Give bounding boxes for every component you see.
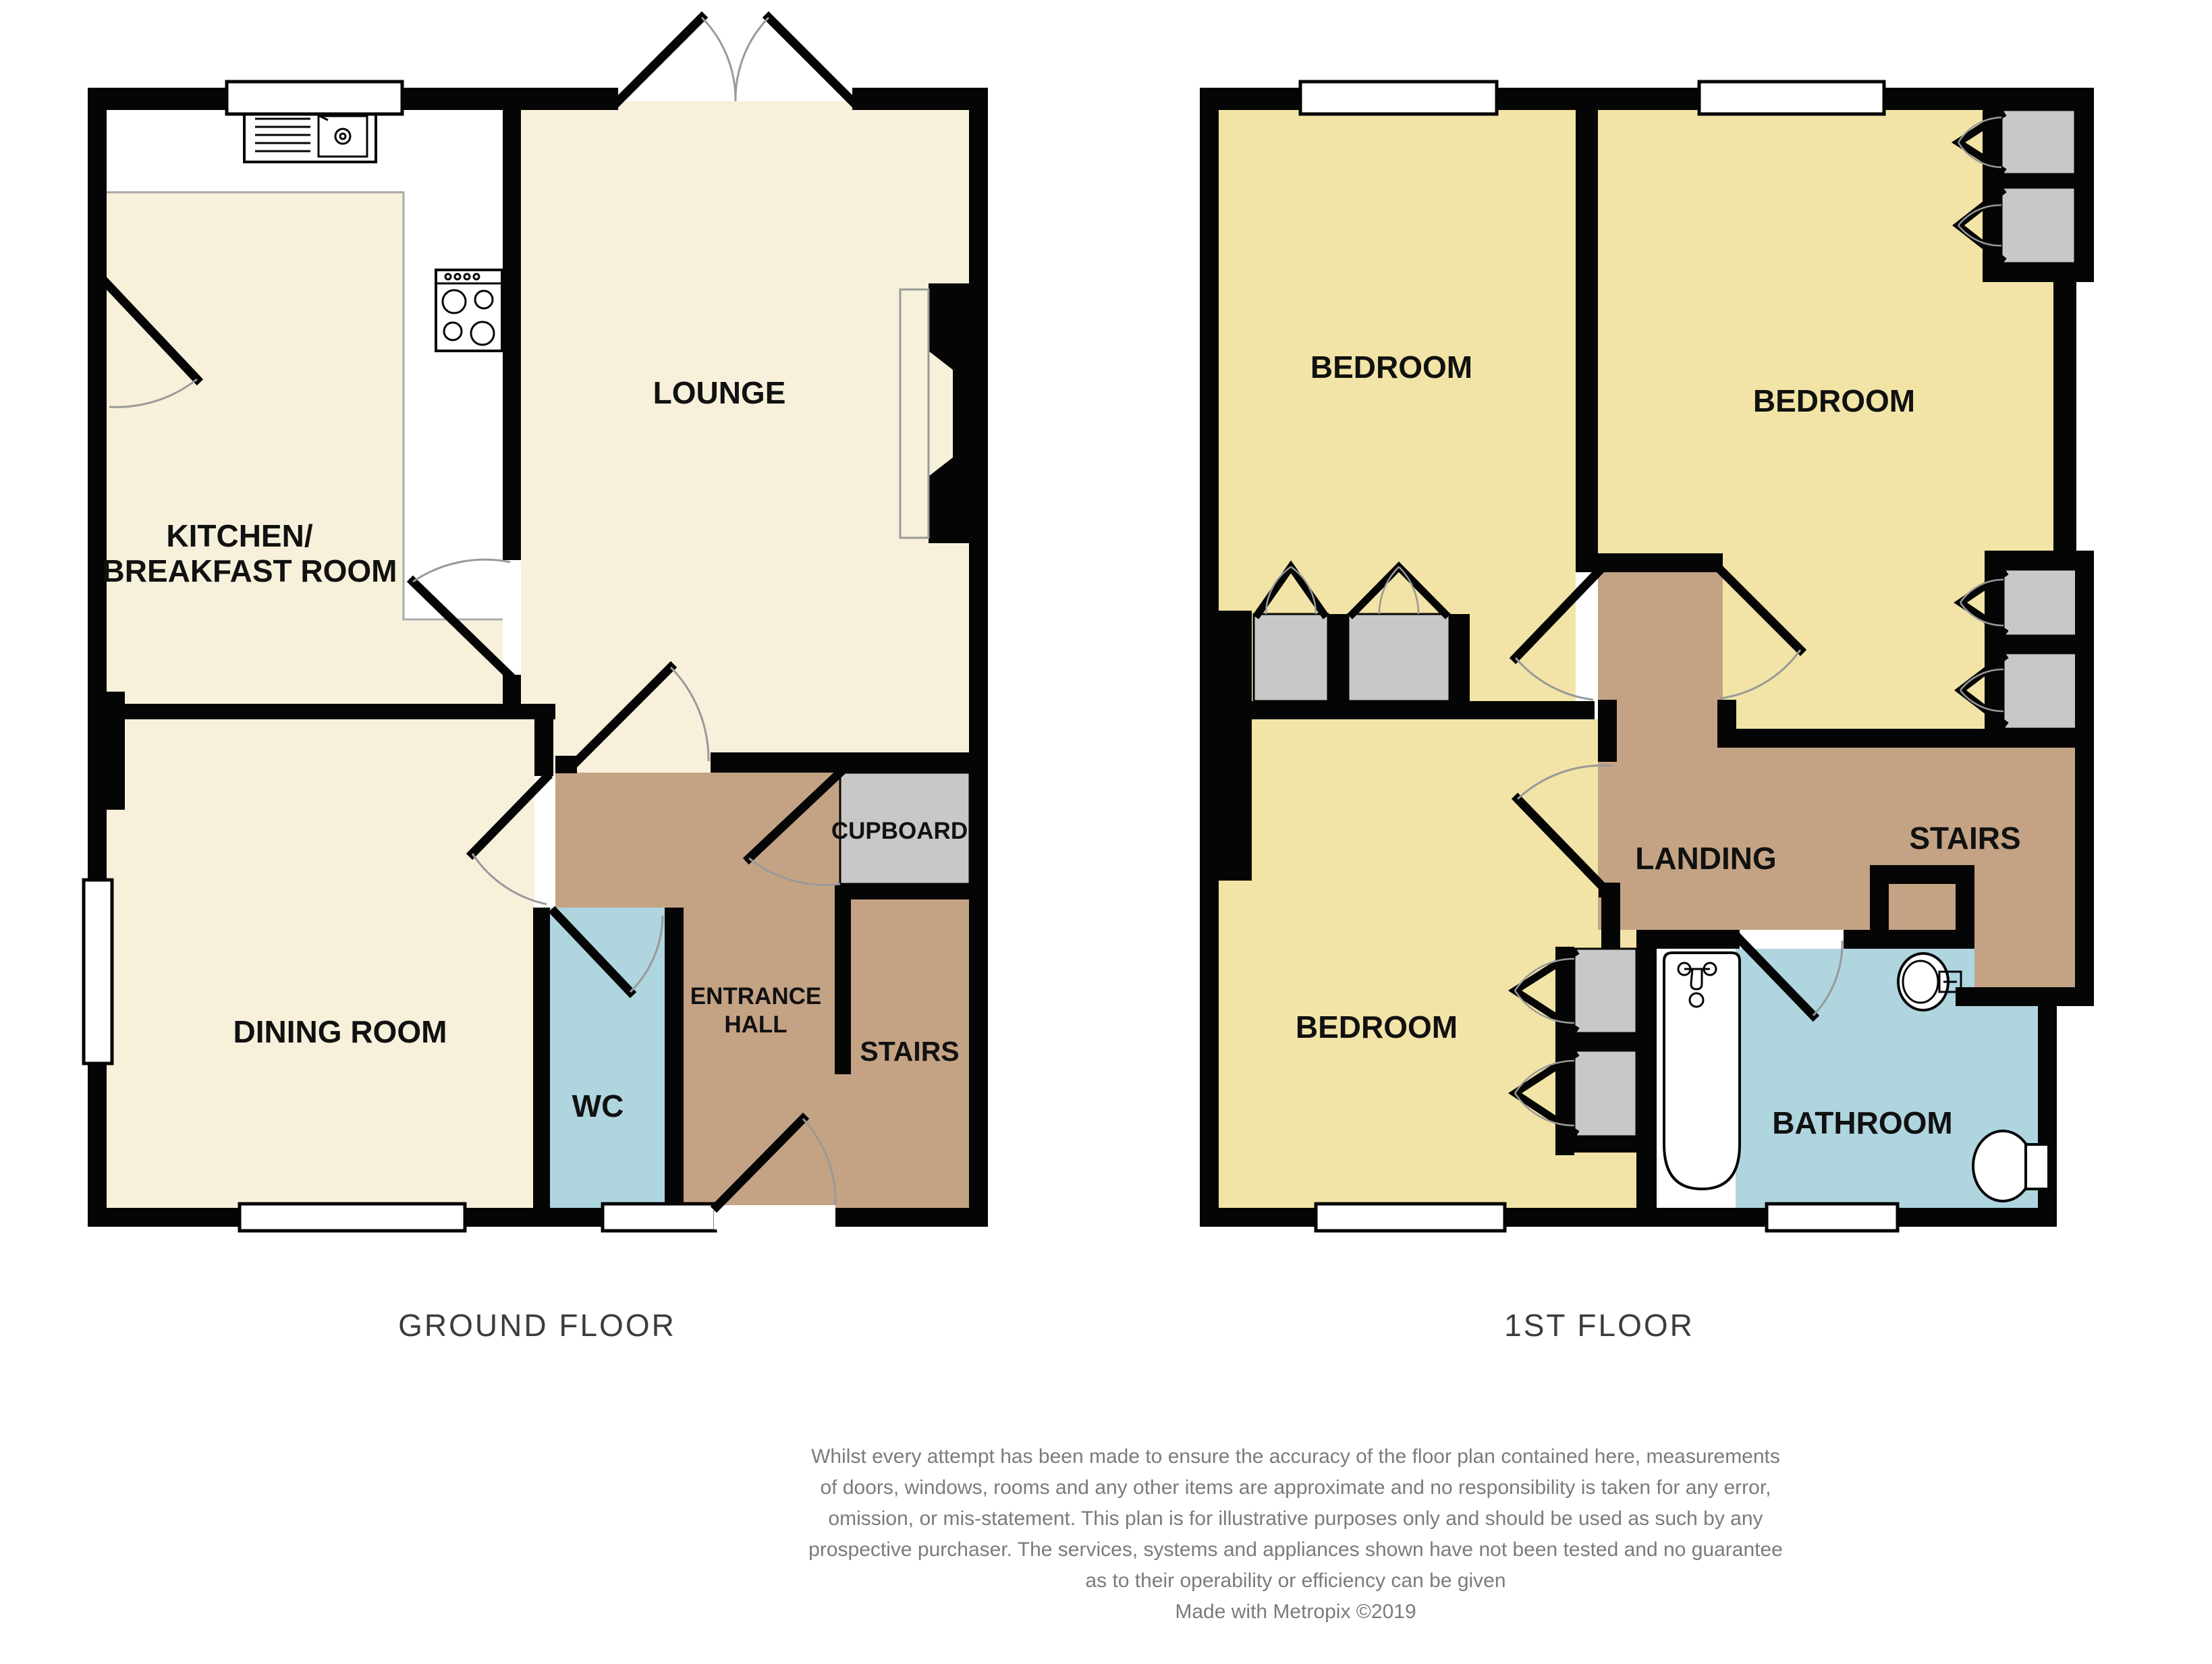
dining-side-window [84, 880, 112, 1063]
floorplan-canvas: KITCHEN/ BREAKFAST ROOM LOUNGE DINING RO… [0, 0, 2212, 1664]
first-floor-title: 1ST FLOOR [1504, 1308, 1694, 1343]
disclaimer-line: prospective purchaser. The services, sys… [702, 1534, 1889, 1565]
dining-room-floor [107, 719, 534, 1208]
dining-room-label: DINING ROOM [233, 1014, 447, 1049]
bedroom1-window [1300, 82, 1497, 114]
ground-floor-title: GROUND FLOOR [398, 1308, 676, 1343]
bathroom-label: BATHROOM [1772, 1105, 1952, 1140]
disclaimer-line: as to their operability or efficiency ca… [702, 1565, 1889, 1597]
bath-tub-icon [1657, 949, 1740, 1208]
kitchen-label-line2: BREAKFAST ROOM [103, 553, 397, 588]
bedroom1-label: BEDROOM [1310, 350, 1472, 385]
first-floor-plan: BEDROOM BEDROOM BEDROOM LANDING STAIRS B… [1200, 82, 2094, 1231]
first-stairs-label: STAIRS [1909, 821, 2020, 856]
disclaimer-line: of doors, windows, rooms and any other i… [702, 1472, 1889, 1503]
disclaimer-text: Whilst every attempt has been made to en… [702, 1441, 1889, 1628]
cooker-hob-icon [436, 270, 502, 351]
kitchen-window [227, 82, 402, 114]
entrance-hall-label-line2: HALL [724, 1011, 787, 1038]
bedroom1-floor [1219, 110, 1576, 701]
wc-floor [550, 908, 665, 1208]
bedroom2-label: BEDROOM [1753, 383, 1915, 418]
kitchen-label-line1: KITCHEN/ [166, 518, 312, 553]
lounge-label: LOUNGE [653, 375, 786, 410]
wc-window [603, 1204, 715, 1231]
landing-nook-floor [1889, 884, 1956, 930]
ground-stairs-label: STAIRS [860, 1036, 959, 1067]
ground-floor-plan: KITCHEN/ BREAKFAST ROOM LOUNGE DINING RO… [84, 18, 988, 1231]
dining-window [240, 1204, 465, 1231]
bedroom2-window [1699, 82, 1884, 114]
landing-label: LANDING [1635, 841, 1777, 876]
wc-label: WC [572, 1088, 624, 1124]
cupboard-label: CUPBOARD [831, 818, 968, 844]
metropix-credit: Made with Metropix ©2019 [702, 1597, 1889, 1628]
fireplace-icon [900, 283, 970, 543]
kitchen-sink-icon [244, 108, 376, 162]
bathroom-window [1767, 1204, 1898, 1231]
disclaimer-line: omission, or mis-statement. This plan is… [702, 1503, 1889, 1534]
front-door-opening [714, 1205, 835, 1229]
disclaimer-line: Whilst every attempt has been made to en… [702, 1441, 1889, 1472]
entrance-hall-label-line1: ENTRANCE [690, 983, 821, 1009]
bedroom3-window [1316, 1204, 1505, 1231]
bedroom3-label: BEDROOM [1296, 1009, 1458, 1045]
landing-floor [1598, 748, 1870, 930]
